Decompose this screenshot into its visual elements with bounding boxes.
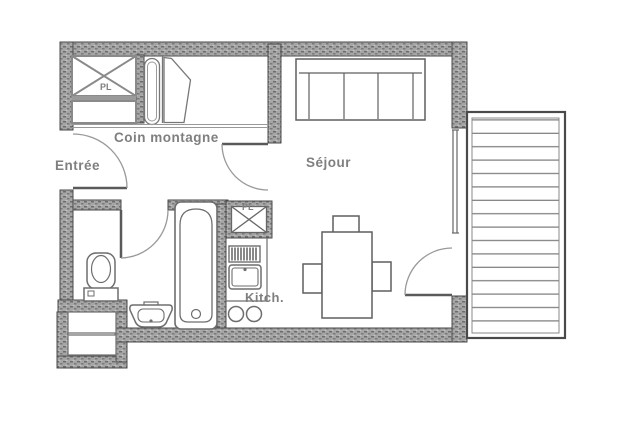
wall-bottom <box>115 328 467 342</box>
bunk-platform-edge <box>72 125 268 128</box>
ski-locker <box>68 312 116 355</box>
kitchen-sink <box>229 265 261 289</box>
toilet <box>84 253 118 301</box>
table-top <box>322 232 372 318</box>
balcony-decking <box>472 118 559 333</box>
balcony <box>467 112 565 338</box>
chair-right <box>372 262 391 291</box>
balcony-door <box>405 248 452 295</box>
kitchen-hob <box>229 246 260 262</box>
bunk-area <box>145 56 191 125</box>
bathroom-door <box>121 210 168 258</box>
bathtub <box>175 202 217 329</box>
sofa <box>296 59 425 120</box>
window <box>452 130 459 233</box>
wall-right-lower <box>452 296 467 342</box>
wall-top <box>60 42 467 56</box>
floor-plan: Entrée Coin montagne Séjour Kitch. PL PL <box>0 0 640 436</box>
wall-left-mid <box>60 190 73 302</box>
closet-label-top: PL <box>100 82 112 92</box>
room-label-sejour: Séjour <box>306 155 351 170</box>
chair-left <box>303 264 322 293</box>
wall-kitchen-divider <box>217 204 226 328</box>
wall-bathroom-bottom <box>58 300 127 312</box>
room-label-coin-montagne: Coin montagne <box>114 130 219 145</box>
closet-label-kitchen: PL <box>242 202 254 212</box>
bidet <box>130 302 172 327</box>
wall-sejour-divider <box>268 44 281 143</box>
kitchen-unit <box>226 238 267 322</box>
room-label-kitchen: Kitch. <box>245 290 284 305</box>
wall-right-upper <box>452 42 467 128</box>
wall-bathroom-top-left <box>73 200 121 210</box>
room-label-entree: Entrée <box>55 158 100 173</box>
wall-closet-side <box>136 55 144 123</box>
floor-plan-drawing <box>0 0 640 436</box>
dining-table <box>303 216 391 318</box>
coin-montagne-door <box>222 144 268 190</box>
kitchen-burners <box>229 307 262 322</box>
